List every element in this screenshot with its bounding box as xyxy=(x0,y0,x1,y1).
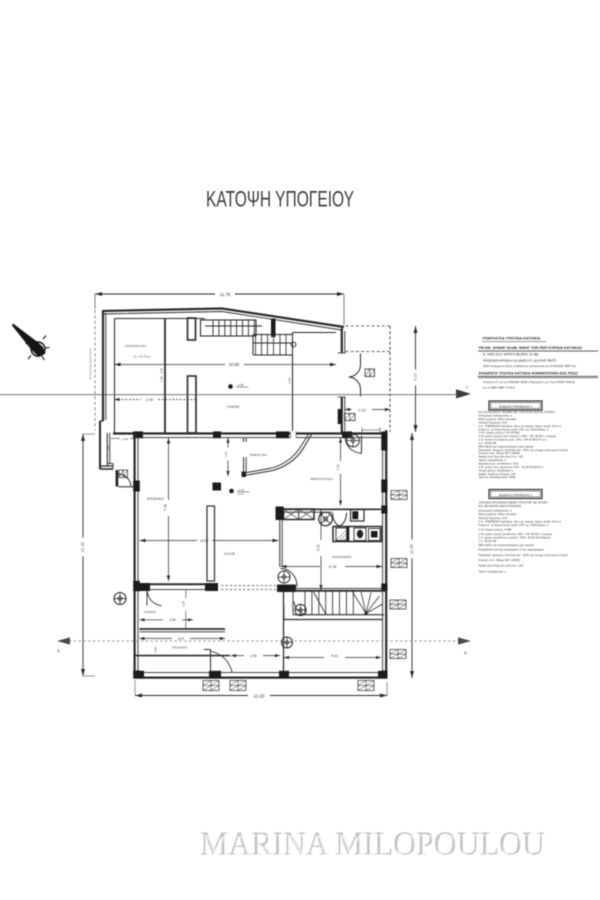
svg-text:4.07: 4.07 xyxy=(178,637,185,641)
svg-text:8.59: 8.59 xyxy=(201,538,210,543)
svg-text:Ν. 4495 /2017 ΑΡΘΡΟ 88 [ΦΕΚ 20: Ν. 4495 /2017 ΑΡΘΡΟ 88 [ΦΕΚ 20 4Β] xyxy=(483,353,538,357)
svg-text:Δ: Δ xyxy=(57,648,60,653)
svg-text:4.78: 4.78 xyxy=(329,564,338,569)
svg-text:3.78: 3.78 xyxy=(317,545,321,551)
svg-text:Κτίριο Α΄ σε Κλειστότητα σχεδ.: Κτίριο Α΄ σε Κλειστότητα σχεδ. ΟΧΙ* με «… xyxy=(479,523,549,527)
svg-text:2.90: 2.90 xyxy=(250,654,257,658)
svg-text:ΑΥΘΑΙΡΕΤΗ ΥΠΟΓΕΙΑ ΚΑΤΟΙΚΙΑ ΝΟ: ΑΥΘΑΙΡΕΤΗ ΥΠΟΓΕΙΑ ΚΑΤΟΙΚΙΑ ΝΟΜΙΜΟΠΟΙΗΣΗ … xyxy=(479,371,579,375)
svg-text:ΕΝΔΕΙΞΗ ΠΑΡΑΒΑΣΗΣ 1: ΕΝΔΕΙΞΗ ΠΑΡΑΒΑΣΗΣ 1 xyxy=(499,405,532,409)
svg-text:1.95: 1.95 xyxy=(182,601,186,607)
svg-text:ΛΕΒΗΤΟΣΤΑΣΙΟ: ΛΕΒΗΤΟΣΤΑΣΙΟ xyxy=(310,477,333,481)
svg-text:3.70: 3.70 xyxy=(336,464,340,470)
svg-text:ΜΗΧΑΝΗΜΑΤΑ: ΜΗΧΑΝΗΜΑΤΑ xyxy=(332,555,352,559)
svg-text:1.85: 1.85 xyxy=(224,451,228,457)
svg-text:ΕΝΔΕΙΞΗ ΠΑΡΑΒΑΣΗΣ 2: ΕΝΔΕΙΞΗ ΠΑΡΑΒΑΣΗΣ 2 xyxy=(499,493,532,497)
svg-text:5.15: 5.15 xyxy=(413,372,418,381)
svg-text:ΑΠΟΘΗΚΗ: ΑΠΟΘΗΚΗ xyxy=(147,497,164,501)
svg-text:7.08: 7.08 xyxy=(164,504,168,511)
svg-text:Αριθμ.(σετ) Νομ.κατ.(σετ) εντ.: Αριθμ.(σετ) Νομ.κατ.(σετ) εντ.: 1/8 xyxy=(479,563,524,567)
svg-text:ΔΕΝ υπάρχουν άλλες αυθαίρετες: ΔΕΝ υπάρχουν άλλες αυθαίρετες κατασκευές… xyxy=(483,364,577,368)
svg-text:Σύνολο υπλ.: Μέχρι 28.7.(2008: Σύνολο υπλ.: Μέχρι 28.7.(2008) xyxy=(479,558,520,562)
svg-text:1.20: 1.20 xyxy=(288,378,292,384)
svg-text:1.20: 1.20 xyxy=(122,437,128,441)
svg-text:2.40: 2.40 xyxy=(146,398,153,402)
svg-text:1.50: 1.50 xyxy=(106,445,110,451)
svg-text:ΑΠΟΘΗΚΗ Νο1: ΑΠΟΘΗΚΗ Νο1 xyxy=(125,344,147,348)
svg-text:Χρέος περιφέρειας: 1: Χρέος περιφέρειας: 1 xyxy=(479,570,507,574)
svg-text:ΓΚΑΡΑΖ: ΓΚΑΡΑΖ xyxy=(227,405,240,409)
svg-text:ΥΦ.ΟΙΚ. ΑΥΘΑΙΡ. ΒΛΑΒ. ΦΘΟΡ. ΤΩ: ΥΦ.ΟΙΚ. ΑΥΘΑΙΡ. ΒΛΑΒ. ΦΘΟΡ. ΤΩΝ ΠΕΡΙ ΚΤΙ… xyxy=(479,346,583,350)
svg-text:-0.38: -0.38 xyxy=(237,383,244,387)
svg-text:MARINA MILOPOULOU: MARINA MILOPOULOU xyxy=(202,828,547,865)
svg-text:Χώρος Δ.Χ. με αν.4495/08-3008: Χώρος Δ.Χ. με αν.4495/08-3008 «Περιοχών»… xyxy=(483,380,575,384)
svg-text:10.90: 10.90 xyxy=(229,362,240,367)
svg-text:1.98: 1.98 xyxy=(154,647,158,653)
svg-text:Χρόνος ολοκλήρωσης: 2008: Χρόνος ολοκλήρωσης: 2008 xyxy=(479,475,516,479)
svg-text:Ε = 47.75 μ²: Ε = 47.75 μ² xyxy=(134,355,151,359)
svg-text:ΡΑΜΠΑ 35%: ΡΑΜΠΑ 35% xyxy=(250,453,267,457)
svg-text:ΕΝ. ΜΗ ΒΟΗΘ.ΧΩΝ ΚΑΤΟΙΚΙΑΣ: ΕΝ. ΜΗ ΒΟΗΘ.ΧΩΝ ΚΑΤΟΙΚΙΑΣ xyxy=(479,504,522,508)
svg-text:με το ΦΕΚ 88Β ΥΠ.Β.Δ.: με το ΦΕΚ 88Β ΥΠ.Β.Δ. xyxy=(483,385,516,389)
svg-text:ΚΛΙΜ/ΣΙΟ: ΚΛΙΜ/ΣΙΟ xyxy=(144,610,157,614)
svg-text:12.20: 12.20 xyxy=(254,694,266,699)
svg-text:ΟΡΙΖΟΝΤΙΑ ΙΔΙΟΚΤΗΣΙΑ: ΟΡΙΖΟΝΤΙΑ ΙΔΙΟΚΤΗΣΙΑ xyxy=(89,348,93,379)
svg-text:Δ: Δ xyxy=(464,650,467,655)
svg-text:3.40: 3.40 xyxy=(160,376,164,382)
svg-text:11.40: 11.40 xyxy=(80,541,85,552)
svg-text:-0.47: -0.47 xyxy=(238,492,245,496)
svg-text:Παραδοθ. κόσμους υπελ/τήλ και: Παραδοθ. κόσμους υπελ/τήλ και - 20% την … xyxy=(479,553,568,557)
svg-text:3.46: 3.46 xyxy=(160,368,164,374)
svg-text:(ΒΧ+ΛΕΛ) την ενεργοποιημένη χρ: (ΒΧ+ΛΕΛ) την ενεργοποιημένη χρλ αφορά xyxy=(479,543,534,547)
svg-text:H=3.08: H=3.08 xyxy=(224,552,235,556)
svg-text:11.80: 11.80 xyxy=(409,543,414,554)
svg-text:ΥΠΑΡΧΟΥΣΑ ΥΠΟΓΕΙΑ ΚΑΤΟΙΚΙΑ: ΥΠΑΡΧΟΥΣΑ ΥΠΟΓΕΙΑ ΚΑΤΟΙΚΙΑ xyxy=(482,337,541,341)
svg-text:ΑΠΟΘΗΚΗ: ΑΠΟΘΗΚΗ xyxy=(172,646,187,650)
svg-text:Παράβαση πρώτης κατηγορίας 4 τ: Παράβαση πρώτης κατηγορίας 4 της παραγρά… xyxy=(479,547,545,551)
svg-text:ΚΑΤΟΨΗ ΥΠΟΓΕΙΟΥ: ΚΑΤΟΨΗ ΥΠΟΓΕΙΟΥ xyxy=(206,187,354,212)
svg-text:2.10: 2.10 xyxy=(358,408,365,412)
svg-text:2.50: 2.50 xyxy=(169,618,176,622)
svg-text:Αναζήτηση κατόψεων με μικρή Δ.: Αναζήτηση κατόψεων με μικρή Δ.Χ. μη αποδ… xyxy=(483,358,556,362)
svg-text:11.75: 11.75 xyxy=(220,292,231,297)
svg-text:4.31: 4.31 xyxy=(331,654,338,658)
